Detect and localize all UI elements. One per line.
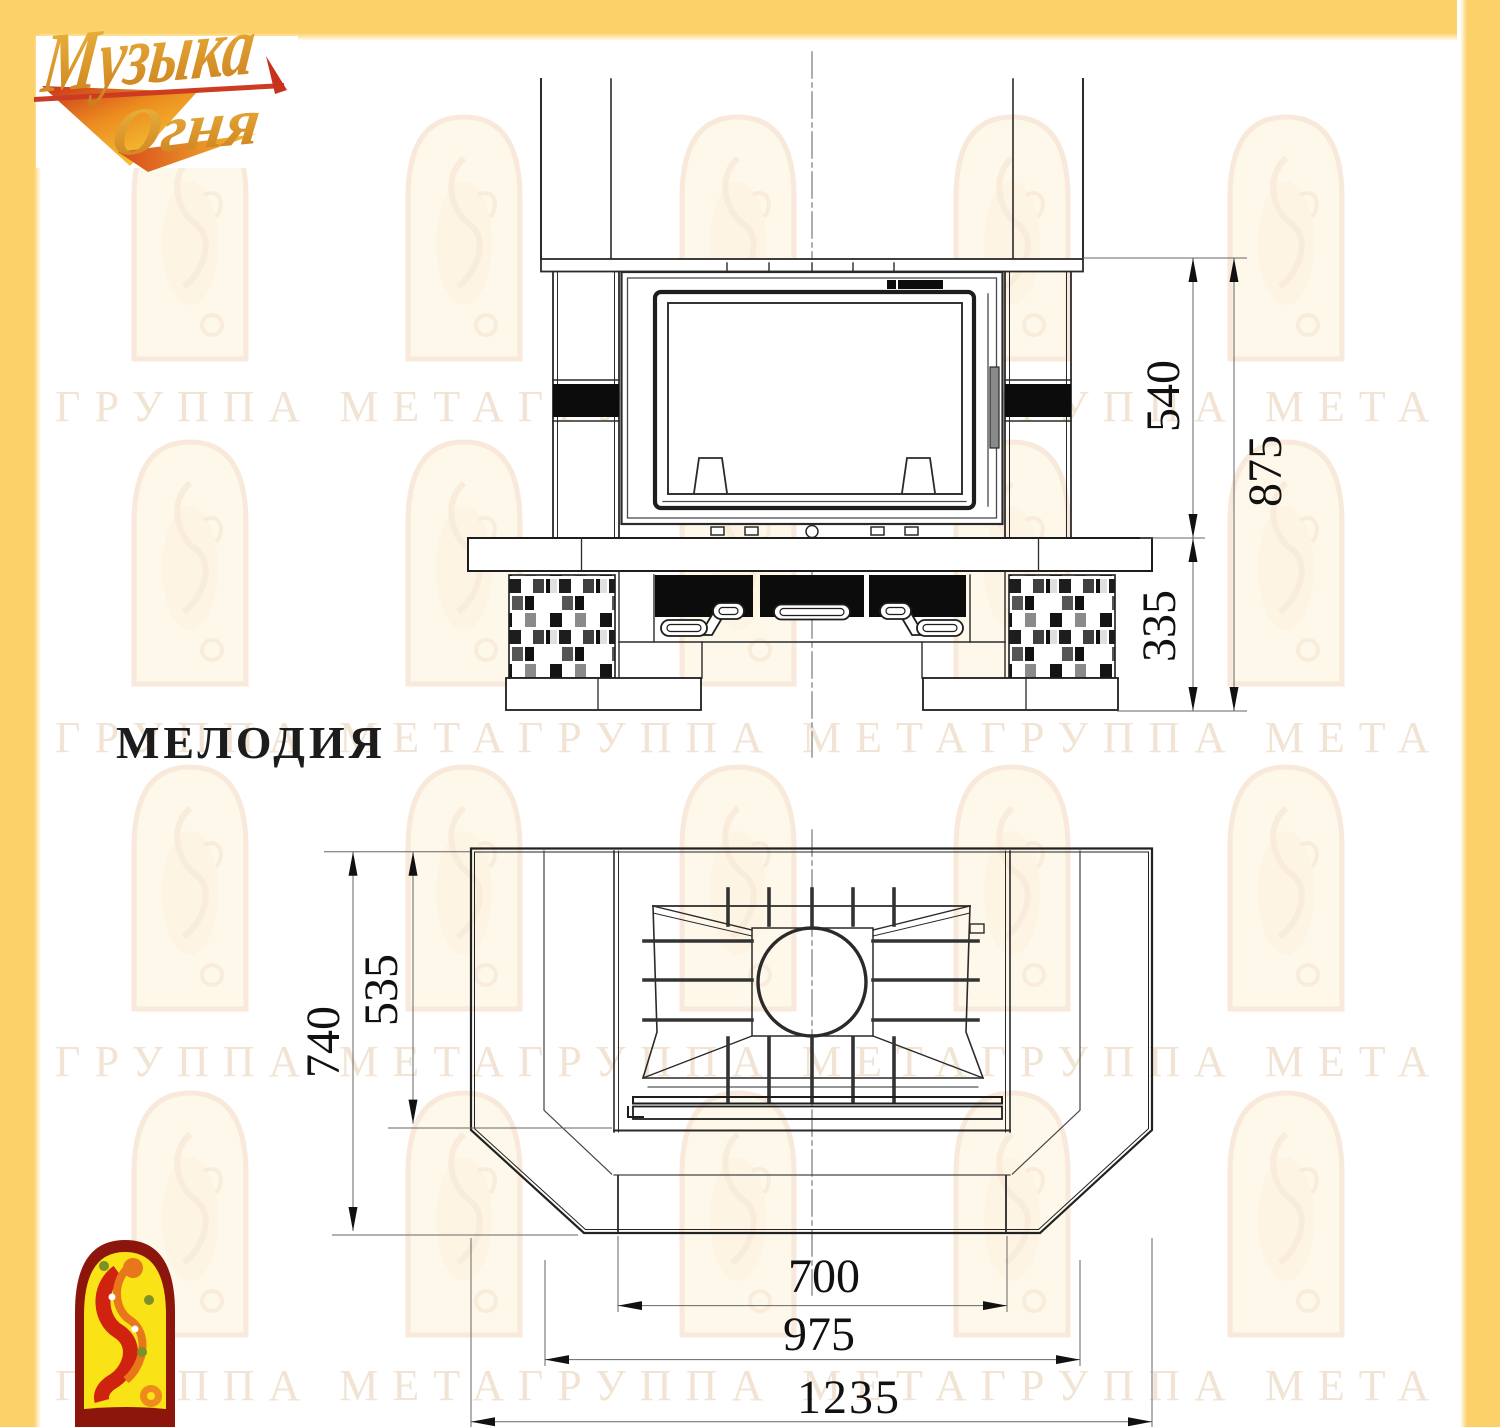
svg-text:Огня: Огня <box>108 85 264 171</box>
svg-text:540: 540 <box>1137 360 1190 432</box>
svg-text:335: 335 <box>1133 590 1186 662</box>
svg-text:1235: 1235 <box>797 1371 901 1424</box>
svg-text:875: 875 <box>1239 435 1292 507</box>
svg-text:ГРУППА МЕТАГРУППА МЕТАГРУППА М: ГРУППА МЕТАГРУППА МЕТАГРУППА МЕТА <box>55 1361 1443 1410</box>
svg-text:700: 700 <box>788 1250 860 1303</box>
svg-text:535: 535 <box>355 954 408 1026</box>
svg-text:МЕЛОДИЯ: МЕЛОДИЯ <box>116 717 386 768</box>
svg-text:975: 975 <box>783 1308 855 1361</box>
svg-text:740: 740 <box>297 1006 350 1078</box>
